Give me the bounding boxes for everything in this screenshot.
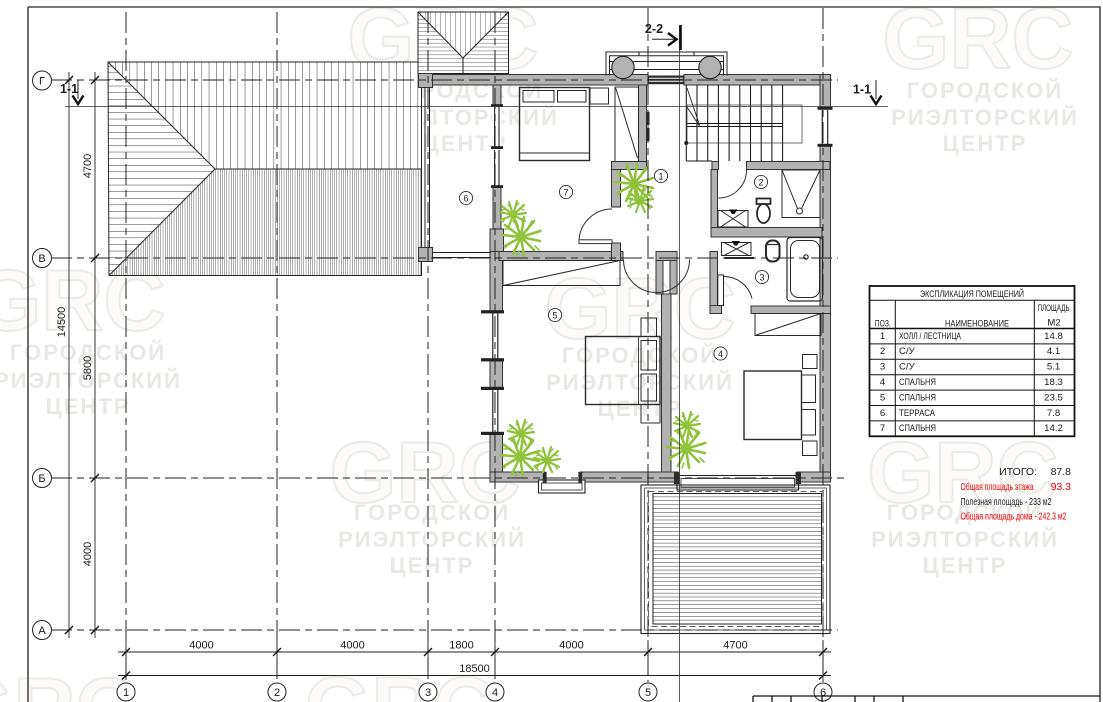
svg-text:1: 1 [123, 687, 129, 699]
svg-text:18.3: 18.3 [1044, 377, 1063, 388]
svg-text:Общая площадь этажа: Общая площадь этажа [961, 481, 1034, 493]
svg-text:GRC: GRC [0, 661, 138, 702]
svg-text:НАИМЕНОВАНИЕ: НАИМЕНОВАНИЕ [945, 318, 1009, 329]
svg-text:4: 4 [718, 349, 723, 359]
svg-text:3: 3 [880, 362, 885, 373]
svg-text:Общая площадь дома - 242.3 м2: Общая площадь дома - 242.3 м2 [961, 511, 1067, 523]
svg-text:6: 6 [880, 408, 885, 419]
svg-text:Б: Б [38, 473, 45, 485]
svg-text:7.8: 7.8 [1047, 408, 1060, 419]
svg-text:5: 5 [645, 687, 651, 699]
svg-text:1-1: 1-1 [60, 82, 78, 96]
svg-text:Г: Г [39, 76, 45, 88]
svg-text:ЦЕНТР: ЦЕНТР [943, 131, 1028, 156]
svg-text:С/У: С/У [899, 346, 916, 357]
svg-text:ПЛОЩАДЬ: ПЛОЩАДЬ [1038, 303, 1070, 314]
svg-text:3: 3 [425, 687, 431, 699]
svg-text:14.2: 14.2 [1044, 423, 1063, 434]
svg-text:В: В [38, 253, 45, 265]
svg-text:4000: 4000 [189, 640, 213, 652]
svg-text:ИТОГО:: ИТОГО: [999, 466, 1037, 478]
svg-text:2: 2 [274, 687, 280, 699]
svg-text:4000: 4000 [559, 640, 583, 652]
svg-text:СПАЛЬНЯ: СПАЛЬНЯ [899, 392, 936, 403]
svg-text:1800: 1800 [449, 640, 473, 652]
svg-text:2: 2 [880, 346, 885, 357]
svg-text:5800: 5800 [82, 356, 94, 380]
svg-text:1-1: 1-1 [853, 83, 871, 97]
svg-text:5: 5 [880, 392, 885, 403]
svg-text:ГОРОДСКОЙ: ГОРОДСКОЙ [907, 78, 1063, 103]
svg-text:2: 2 [758, 177, 763, 187]
svg-text:18500: 18500 [459, 663, 490, 675]
svg-text:7: 7 [563, 187, 568, 197]
svg-text:ТЕРРАСА: ТЕРРАСА [899, 408, 935, 419]
svg-text:93.3: 93.3 [1051, 481, 1072, 493]
svg-text:14500: 14500 [56, 307, 68, 338]
svg-text:М2: М2 [1047, 317, 1060, 328]
svg-text:6: 6 [463, 193, 468, 203]
svg-text:РИЭЛТОРСКИЙ: РИЭЛТОРСКИЙ [338, 527, 526, 552]
svg-text:ГОРОДСКОЙ: ГОРОДСКОЙ [354, 500, 510, 525]
svg-text:ХОЛЛ / ЛЕСТНИЦА: ХОЛЛ / ЛЕСТНИЦА [899, 331, 961, 342]
svg-text:4000: 4000 [340, 640, 364, 652]
svg-text:1: 1 [880, 331, 885, 342]
svg-text:С/У: С/У [899, 362, 916, 373]
svg-text:3: 3 [759, 272, 764, 282]
svg-text:4: 4 [492, 687, 498, 699]
svg-text:4700: 4700 [723, 640, 747, 652]
svg-text:4000: 4000 [82, 542, 94, 566]
svg-text:СПАЛЬНЯ: СПАЛЬНЯ [899, 377, 936, 388]
svg-text:4: 4 [880, 377, 886, 388]
svg-text:РИЭЛТОРСКИЙ: РИЭЛТОРСКИЙ [891, 105, 1079, 130]
svg-text:5: 5 [552, 310, 557, 320]
svg-text:ЦЕНТР: ЦЕНТР [390, 553, 475, 578]
svg-text:А: А [38, 625, 46, 637]
svg-text:6: 6 [820, 687, 826, 699]
svg-text:23.5: 23.5 [1044, 392, 1063, 403]
svg-text:4.1: 4.1 [1047, 346, 1060, 357]
svg-text:4700: 4700 [82, 154, 94, 178]
svg-text:87.8: 87.8 [1051, 466, 1072, 478]
svg-text:РИЭЛТОРСКИЙ: РИЭЛТОРСКИЙ [546, 370, 734, 395]
svg-text:Полезная площадь - 233 м2: Полезная площадь - 233 м2 [961, 496, 1052, 508]
svg-text:ЭКСПЛИКАЦИЯ ПОМЕЩЕНИЙ: ЭКСПЛИКАЦИЯ ПОМЕЩЕНИЙ [920, 288, 1024, 300]
svg-text:1: 1 [658, 171, 663, 181]
svg-text:ЦЕНТР: ЦЕНТР [923, 553, 1008, 578]
svg-text:СПАЛЬНЯ: СПАЛЬНЯ [899, 423, 936, 434]
svg-text:2-2: 2-2 [645, 22, 663, 36]
svg-text:GRC: GRC [882, 0, 1073, 87]
svg-text:7: 7 [880, 423, 885, 434]
svg-text:14.8: 14.8 [1044, 331, 1063, 342]
svg-text:ЦЕНТР: ЦЕНТР [46, 394, 131, 419]
svg-text:5.1: 5.1 [1047, 362, 1060, 373]
svg-text:РИЭЛТОРСКИЙ: РИЭЛТОРСКИЙ [871, 527, 1059, 552]
svg-text:ПОЗ.: ПОЗ. [875, 318, 891, 329]
